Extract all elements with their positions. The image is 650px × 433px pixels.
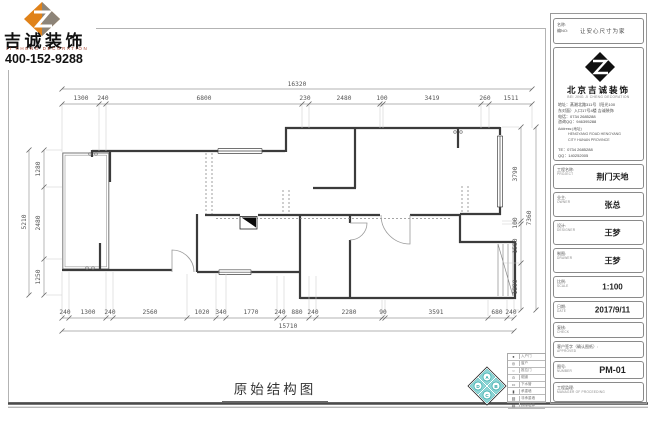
legend-row: ▤拆除墙体 bbox=[508, 402, 545, 409]
legend-label: 入户门 bbox=[520, 354, 545, 359]
window-symbols bbox=[218, 135, 503, 275]
legend-label: 推拉门 bbox=[520, 368, 545, 373]
titleblock-field-manager: 工程监理:MANAGER OF PROCEEDING bbox=[553, 382, 644, 402]
legend-label: 非承重墙 bbox=[520, 396, 545, 401]
svg-text:230: 230 bbox=[299, 95, 310, 102]
company-phone: 400-152-9288 bbox=[5, 52, 83, 66]
svg-text:6800: 6800 bbox=[197, 95, 212, 102]
legend-row: ◎窗户 bbox=[508, 361, 545, 368]
titleblock-field-scale: 比例:SCALE 1:100 bbox=[553, 276, 644, 298]
titleblock-field-approved: 客户签字（确认图纸）:APPROVED bbox=[553, 341, 644, 358]
legend-row: ⊙烟道 bbox=[508, 375, 545, 382]
svg-text:260: 260 bbox=[479, 95, 490, 102]
legend-row: ▨非承重墙 bbox=[508, 395, 545, 402]
svg-text:3419: 3419 bbox=[425, 95, 440, 102]
svg-text:15710: 15710 bbox=[279, 323, 298, 330]
legend-label: 下水管 bbox=[520, 382, 545, 387]
svg-text:340: 340 bbox=[215, 309, 226, 316]
legend-symbol: ● bbox=[508, 354, 520, 359]
legend-symbol: ○ bbox=[508, 368, 520, 373]
project-value: 荆门天地 bbox=[584, 171, 641, 182]
number-value: PM-01 bbox=[584, 365, 641, 375]
legend-row: ▮承重墙 bbox=[508, 388, 545, 395]
door-arcs bbox=[172, 215, 410, 272]
titleblock-field-drawer: 制图:DRAWER 王梦 bbox=[553, 248, 644, 273]
beam-dotted-lines bbox=[206, 153, 468, 219]
legend-symbol: ▮ bbox=[508, 389, 520, 394]
titleblock-address: 地址：蒸湘北路311号（阳光100 东对面）入口17号4楼 吉诚装饰 电话：07… bbox=[558, 102, 615, 125]
svg-text:2560: 2560 bbox=[143, 309, 158, 316]
legend-symbol: ▨ bbox=[508, 396, 520, 401]
titleblock-field-check: 复核:CHECK bbox=[553, 322, 644, 338]
svg-text:3790: 3790 bbox=[512, 166, 519, 181]
svg-text:240: 240 bbox=[505, 309, 516, 316]
svg-text:1250: 1250 bbox=[35, 269, 42, 284]
legend-label: 承重墙 bbox=[520, 389, 545, 394]
legend-label: 窗户 bbox=[520, 361, 545, 366]
svg-text:680: 680 bbox=[491, 309, 502, 316]
date-value: 2017/9/11 bbox=[584, 306, 641, 315]
legend-symbol: ▤ bbox=[508, 403, 520, 408]
svg-text:1890: 1890 bbox=[512, 279, 519, 294]
svg-text:90: 90 bbox=[379, 309, 387, 316]
legend-row: ○推拉门 bbox=[508, 368, 545, 375]
svg-text:240: 240 bbox=[274, 309, 285, 316]
titleblock-name-box: 名称: 编NO: 让安心尺寸为家 bbox=[553, 18, 644, 44]
scale-value: 1:100 bbox=[584, 283, 641, 292]
svg-text:2280: 2280 bbox=[342, 309, 357, 316]
svg-text:1300: 1300 bbox=[74, 95, 89, 102]
flue-symbol bbox=[240, 217, 257, 230]
svg-text:880: 880 bbox=[291, 309, 302, 316]
titleblock-field-project: 工程名称:PROJECT 荆门天地 bbox=[553, 164, 644, 189]
svg-text:100: 100 bbox=[512, 217, 519, 228]
svg-text:240: 240 bbox=[59, 309, 70, 316]
svg-text:1580: 1580 bbox=[512, 238, 519, 253]
balcony-walls bbox=[63, 153, 109, 269]
legend-row: ▭下水管 bbox=[508, 382, 545, 389]
svg-text:100: 100 bbox=[376, 95, 387, 102]
walls bbox=[62, 127, 516, 299]
svg-text:1280: 1280 bbox=[35, 161, 42, 176]
legend-symbol: ⊙ bbox=[508, 375, 520, 380]
name-labels: 名称: 编NO: bbox=[557, 22, 568, 34]
dimension-lines bbox=[29, 89, 536, 331]
svg-text:1511: 1511 bbox=[504, 95, 519, 102]
svg-text:1770: 1770 bbox=[244, 309, 259, 316]
titleblock-company-en: BEI JING JI CHENG DECORATION bbox=[554, 95, 643, 99]
legend-row: ●入户门 bbox=[508, 354, 545, 361]
drawer-value: 王梦 bbox=[584, 255, 641, 266]
owner-value: 张总 bbox=[584, 199, 641, 210]
svg-text:7360: 7360 bbox=[526, 210, 533, 225]
legend-label: 拆除墙体 bbox=[520, 403, 545, 408]
legend-table: ●入户门 ◎窗户 ○推拉门 ⊙烟道 ▭下水管 ▮承重墙 ▨非承重墙 ▤拆除墙体 bbox=[507, 353, 546, 403]
svg-text:3591: 3591 bbox=[429, 309, 444, 316]
titleblock-field-designer: 设计:DESIGNER 王梦 bbox=[553, 220, 644, 245]
svg-text:1020: 1020 bbox=[195, 309, 210, 316]
titleblock-logo-icon bbox=[585, 52, 615, 82]
titleblock-field-number: 图号:NUMBER PM-01 bbox=[553, 361, 644, 379]
svg-text:5210: 5210 bbox=[21, 214, 28, 229]
titleblock-field-owner: 业主:OWNER 张总 bbox=[553, 192, 644, 217]
svg-text:2480: 2480 bbox=[337, 95, 352, 102]
svg-text:16320: 16320 bbox=[288, 81, 307, 88]
svg-text:240: 240 bbox=[307, 309, 318, 316]
titleblock-tel-qq: TE：0734 2685288 QQ：140252005 bbox=[558, 147, 593, 160]
svg-text:1300: 1300 bbox=[81, 309, 96, 316]
titleblock-company-box: 北京吉诚装饰 BEI JING JI CHENG DECORATION 地址：蒸… bbox=[553, 47, 644, 161]
svg-text:2480: 2480 bbox=[35, 215, 42, 230]
legend-symbol: ▭ bbox=[508, 382, 520, 387]
no-label: 编NO: bbox=[557, 28, 568, 33]
company-name-en: JI CHENG DECORATION bbox=[6, 46, 88, 51]
legend-label: 烟道 bbox=[520, 375, 545, 380]
svg-text:240: 240 bbox=[97, 95, 108, 102]
legend-symbol: ◎ bbox=[508, 361, 520, 366]
slogan-text: 让安心尺寸为家 bbox=[580, 27, 626, 35]
designer-value: 王梦 bbox=[584, 227, 641, 238]
svg-text:240: 240 bbox=[104, 309, 115, 316]
drawing-title: 原始结构图 bbox=[222, 378, 328, 402]
compass-icon: A B C D bbox=[468, 367, 506, 405]
titleblock-address-en: Address:(地址) HENGYANG ROAD HENGYANG CITY… bbox=[558, 127, 621, 143]
drawing-sheet: 1300 240 6800 230 2480 100 3419 260 1511… bbox=[0, 0, 650, 433]
name-label: 名称: bbox=[557, 22, 566, 27]
company-logo-block: 吉诚装饰 JI CHENG DECORATION 400-152-9288 bbox=[0, 0, 96, 70]
titleblock-field-date: 日期:DATE 2017/9/11 bbox=[553, 301, 644, 319]
duct-hatch bbox=[498, 244, 513, 296]
